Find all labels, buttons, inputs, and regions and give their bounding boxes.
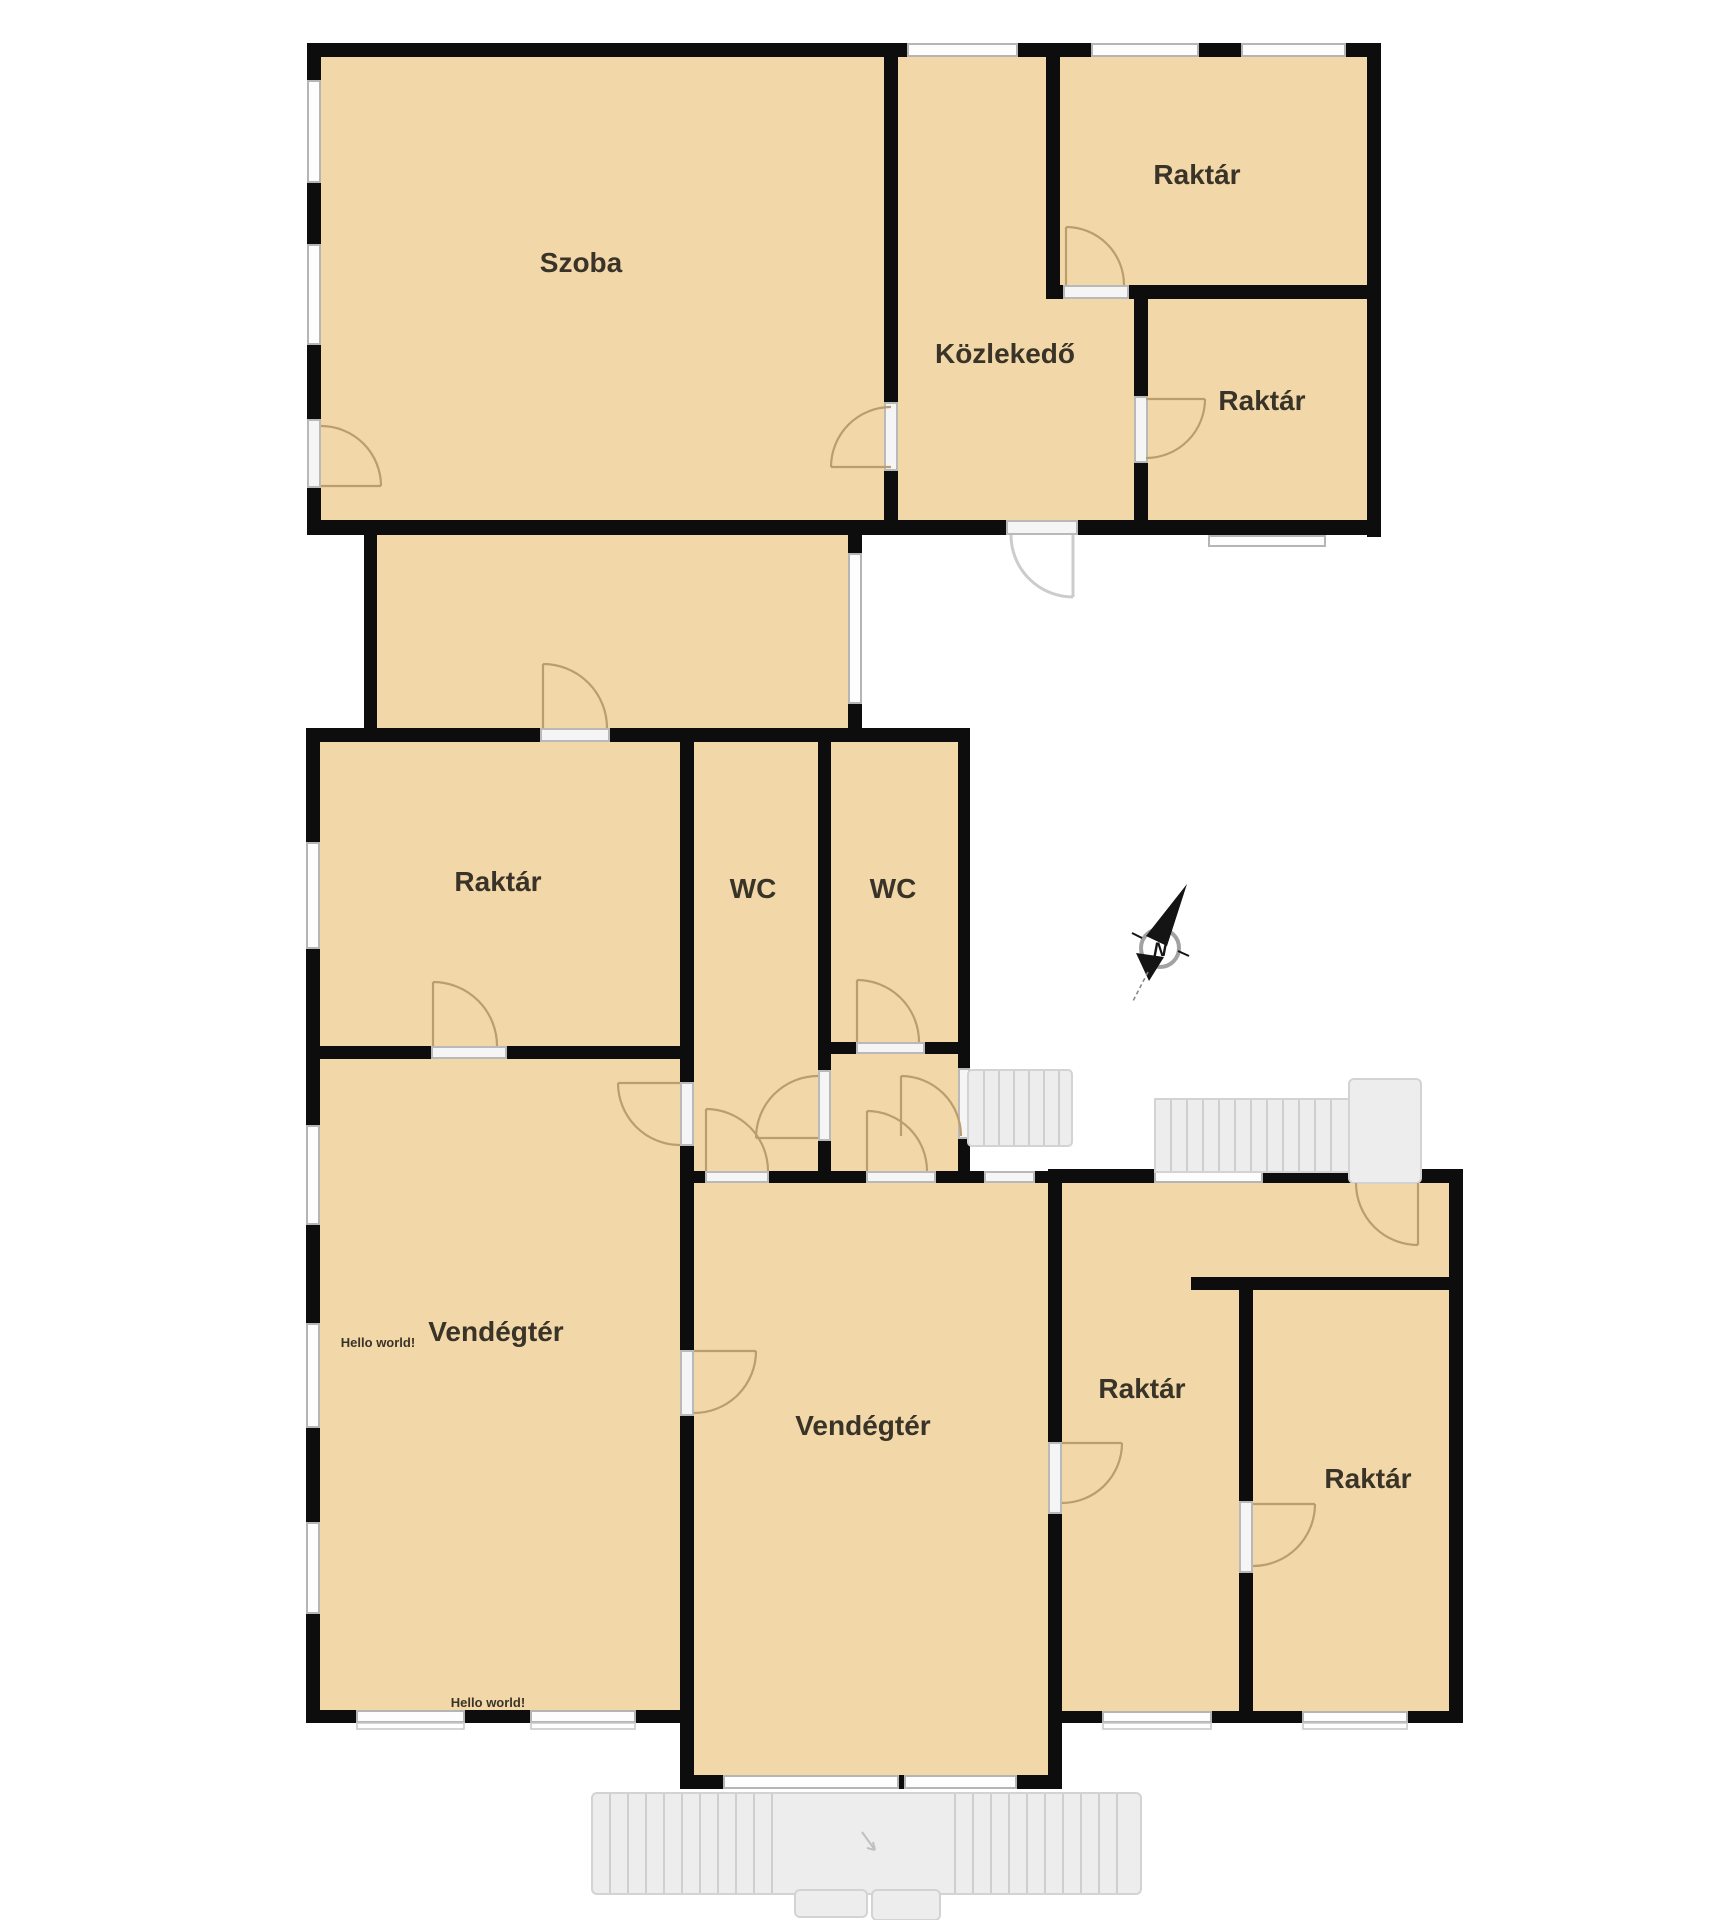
- svg-text:Raktár: Raktár: [1218, 385, 1305, 416]
- svg-text:WC: WC: [730, 873, 777, 904]
- svg-text:WC: WC: [870, 873, 917, 904]
- svg-text:Raktár: Raktár: [1324, 1463, 1411, 1494]
- svg-text:Raktár: Raktár: [454, 866, 541, 897]
- svg-text:Szoba: Szoba: [540, 247, 623, 278]
- svg-text:Raktár: Raktár: [1153, 159, 1240, 190]
- svg-text:Közlekedő: Közlekedő: [935, 338, 1075, 369]
- svg-text:Vendégtér: Vendégtér: [795, 1410, 930, 1441]
- svg-text:Raktár: Raktár: [1098, 1373, 1185, 1404]
- svg-text:Vendégtér: Vendégtér: [428, 1316, 563, 1347]
- svg-text:Hello world!: Hello world!: [341, 1335, 415, 1350]
- svg-text:Hello world!: Hello world!: [451, 1695, 525, 1710]
